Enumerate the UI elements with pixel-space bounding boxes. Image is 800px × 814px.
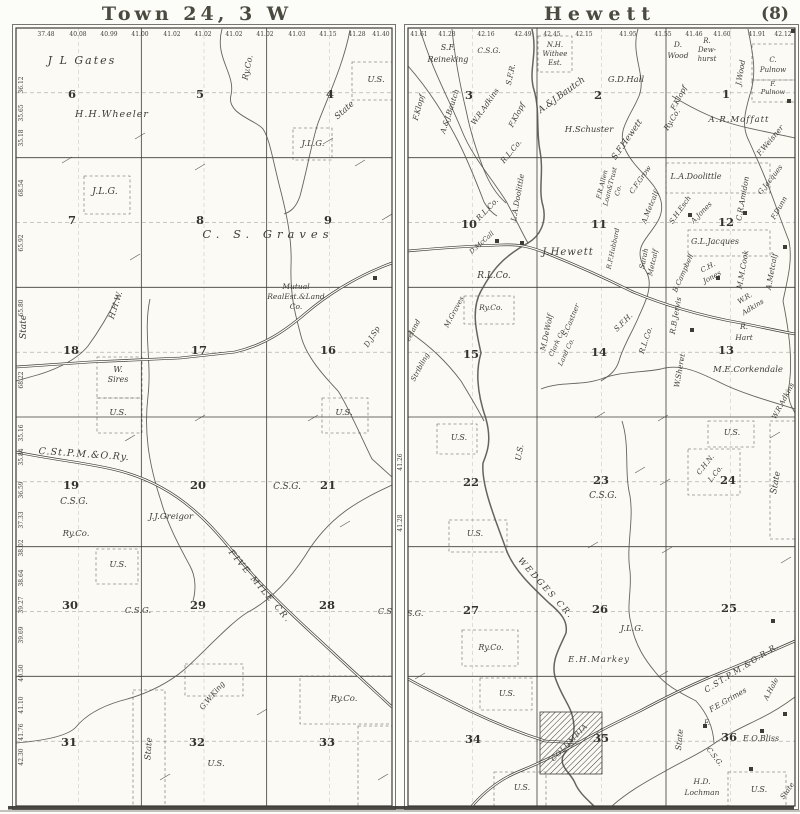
owner-label: RealEst.&Land (266, 292, 325, 301)
section-number: 14 (591, 345, 607, 359)
owner-label: F. (703, 719, 710, 727)
owner-label: U.S. (109, 408, 126, 418)
section-number: 12 (718, 215, 734, 229)
edge-acreage-number: 41.76 (18, 723, 25, 740)
owner-label: Co. (290, 302, 303, 311)
section-number: 33 (319, 735, 335, 749)
edge-acreage-number: 41.02 (194, 31, 211, 38)
edge-acreage-number: 37.48 (37, 31, 54, 38)
owner-label: Ry.Co. (62, 529, 90, 539)
building-marker (373, 276, 377, 280)
owner-label: Reineking (427, 55, 469, 64)
scan-edge-smudge (8, 806, 794, 810)
plat-map-page: Town 24, 3 W Hewett (8) 6547891817161920… (0, 0, 800, 814)
edge-acreage-number: 41.91 (748, 31, 765, 38)
owner-label: U.S. (367, 75, 384, 85)
owner-label: C. (769, 56, 776, 64)
section-number: 10 (461, 217, 477, 231)
section-number: 25 (721, 601, 737, 615)
owner-label: Ry.Co. (330, 694, 358, 704)
edge-acreage-number: 41.26 (397, 453, 404, 470)
edge-acreage-number: 40.08 (69, 31, 86, 38)
owner-label: J.J.Greigor (147, 512, 194, 522)
section-number: 13 (718, 343, 734, 357)
section-number: 24 (720, 473, 736, 487)
section-number: 15 (463, 347, 479, 361)
owner-label: U.S. (109, 560, 126, 570)
owner-label: G.D.Hall (608, 75, 645, 85)
edge-acreage-number: 41.15 (319, 31, 336, 38)
edge-acreage-number: 38.02 (18, 539, 25, 556)
owner-label: D. (673, 40, 682, 49)
owner-label: Sires (108, 375, 129, 384)
owner-label: J.L.G. (90, 186, 118, 197)
owner-label: Wood (667, 51, 688, 60)
edge-acreage-number: 41.03 (288, 31, 305, 38)
owner-label: H.Schuster (564, 125, 614, 135)
section-number: 3 (465, 88, 473, 102)
plat-map-canvas: 654789181716192021302928313233J L GatesH… (0, 0, 800, 814)
owner-label: N.H. (546, 41, 563, 49)
section-number: 26 (592, 602, 608, 616)
owner-label: C.S.G. (399, 609, 424, 618)
edge-acreage-number: 35.65 (18, 104, 25, 121)
section-number: 21 (320, 478, 336, 492)
owner-label: Ry.Co. (478, 303, 503, 312)
section-number: 4 (326, 87, 334, 101)
building-marker (690, 328, 694, 332)
owner-label: A.R.Moffatt (708, 115, 770, 125)
owner-label: U.S. (467, 529, 483, 538)
edge-acreage-number: 37.33 (18, 511, 25, 528)
section-number: 34 (465, 732, 481, 746)
building-marker (783, 712, 787, 716)
owner-label: U.S. (207, 759, 224, 769)
edge-acreage-number: 41.02 (256, 31, 273, 38)
section-number: 23 (593, 473, 609, 487)
owner-label: M.E.Corkendale (712, 365, 783, 375)
owner-label: hurst (698, 55, 717, 63)
section-number: 7 (68, 213, 76, 227)
owner-label: Pulnow (760, 88, 786, 96)
section-number: 18 (63, 343, 79, 357)
owner-label: U.S. (751, 785, 767, 794)
edge-acreage-number: 36.12 (18, 76, 25, 93)
edge-acreage-number: 41.28 (438, 31, 455, 38)
owner-label: S.F. (441, 43, 456, 52)
section-number: 6 (68, 87, 76, 101)
edge-acreage-number: 42.12 (774, 31, 791, 38)
owner-label: Hart (734, 333, 754, 342)
edge-acreage-number: 42.49 (514, 31, 531, 38)
edge-acreage-number: 40.99 (100, 31, 117, 38)
owner-label: U.S. (499, 689, 515, 698)
owner-label: H.H.Wheeler (74, 109, 149, 120)
owner-label: E.O.Bliss (742, 734, 779, 743)
scan-edge-shadow (0, 810, 800, 812)
owner-label: State (143, 737, 155, 760)
edge-acreage-number: 38.64 (18, 569, 25, 586)
edge-acreage-number: 40.50 (18, 664, 25, 681)
edge-acreage-number: 68.54 (18, 179, 25, 196)
building-marker (791, 29, 795, 33)
edge-acreage-number: 41.00 (131, 31, 148, 38)
edge-acreage-number: 42.16 (477, 31, 494, 38)
owner-label: U.S. (451, 433, 467, 442)
owner-label: Lochman (684, 788, 720, 797)
township-panel-west: 654789181716192021302928313233J L GatesH… (13, 25, 396, 810)
owner-label: C.S.G. (589, 491, 617, 501)
edge-acreage-number: 41.61 (410, 31, 427, 38)
owner-label: Mutual (281, 282, 310, 291)
section-number: 8 (196, 213, 204, 227)
section-number: 20 (190, 478, 206, 492)
edge-acreage-number: 42.30 (18, 748, 25, 765)
section-number: 19 (63, 478, 79, 492)
section-number: 29 (190, 598, 206, 612)
edge-acreage-number: 41.02 (163, 31, 180, 38)
edge-acreage-number: 41.28 (397, 514, 404, 531)
section-number: 11 (591, 217, 607, 231)
building-marker (749, 767, 753, 771)
owner-label: E.H.Markey (567, 655, 630, 665)
owner-label: C.S.G. (273, 482, 301, 492)
owner-label: R. (739, 322, 748, 331)
edge-acreage-number: 41.95 (619, 31, 636, 38)
section-number: 17 (191, 343, 207, 357)
building-marker (783, 245, 787, 249)
owner-label: C.S.G. (477, 46, 500, 55)
edge-acreage-number: 41.40 (372, 31, 389, 38)
owner-label: C.S.G. (60, 497, 88, 507)
edge-acreage-number: 41.28 (348, 31, 365, 38)
edge-acreage-number: 41.55 (654, 31, 671, 38)
section-number: 27 (463, 603, 479, 617)
section-number: 2 (594, 88, 602, 102)
owner-label: J.L.G. (300, 139, 325, 149)
section-number: 31 (61, 735, 77, 749)
owner-label: C.S.G. (125, 606, 151, 616)
owner-label: State (19, 315, 29, 339)
building-marker (760, 729, 764, 733)
building-marker (771, 619, 775, 623)
edge-acreage-number: 35.84 (18, 448, 25, 465)
section-number: 30 (62, 598, 78, 612)
section-number: 22 (463, 475, 479, 489)
owner-label: H.D. (692, 777, 710, 786)
owner-label: W. (113, 365, 122, 374)
edge-acreage-number: 39.69 (18, 626, 25, 643)
owner-label: Ry.Co. (477, 643, 503, 652)
section-number: 32 (189, 735, 205, 749)
edge-acreage-number: 68.22 (18, 371, 25, 388)
edge-acreage-number: 42.15 (575, 31, 592, 38)
edge-acreage-number: 42.45 (543, 31, 560, 38)
edge-acreage-number: 35.16 (18, 424, 25, 441)
owner-label: U.S. (724, 428, 740, 437)
owner-label: J L Gates (46, 54, 117, 67)
owner-label: C. S. Graves (202, 227, 333, 241)
owner-label: G.L.Jacques (691, 237, 739, 246)
section-number: 28 (319, 598, 335, 612)
section-number: 36 (721, 730, 737, 744)
section-number: 9 (324, 213, 332, 227)
section-number: 35 (593, 731, 609, 745)
edge-acreage-number: 65.80 (18, 299, 25, 316)
owner-label: Est. (547, 59, 562, 67)
owner-label: J.L.G. (619, 624, 644, 634)
section-number: 1 (722, 87, 730, 101)
edge-acreage-number: 39.27 (18, 596, 25, 613)
building-marker (520, 241, 524, 245)
owner-label: R. (702, 37, 711, 45)
edge-acreage-number: 41.10 (18, 696, 25, 713)
section-number: 5 (196, 87, 204, 101)
building-marker (495, 239, 499, 243)
owner-label: Pulnow (759, 66, 786, 74)
owner-label: L.A.Doolittle (669, 172, 721, 181)
owner-label: U.S. (335, 408, 352, 418)
building-marker (787, 99, 791, 103)
owner-label: R.L.Co. (476, 271, 511, 281)
owner-label: U.S. (514, 783, 530, 792)
owner-label: Dew- (697, 46, 717, 54)
edge-acreage-number: 35.18 (18, 129, 25, 146)
edge-acreage-number: 36.59 (18, 481, 25, 498)
edge-acreage-number: 41.46 (685, 31, 702, 38)
owner-label: F. (769, 80, 776, 88)
owner-label: J.Hewett (540, 247, 594, 258)
edge-acreage-number: 41.02 (225, 31, 242, 38)
edge-acreage-number: 41.60 (713, 31, 730, 38)
edge-acreage-number: 65.92 (18, 234, 25, 251)
township-panel-east: 321101112151413222324272625343536S.F.Rei… (397, 25, 799, 810)
owner-label: Withee (543, 50, 568, 58)
section-number: 16 (320, 343, 336, 357)
